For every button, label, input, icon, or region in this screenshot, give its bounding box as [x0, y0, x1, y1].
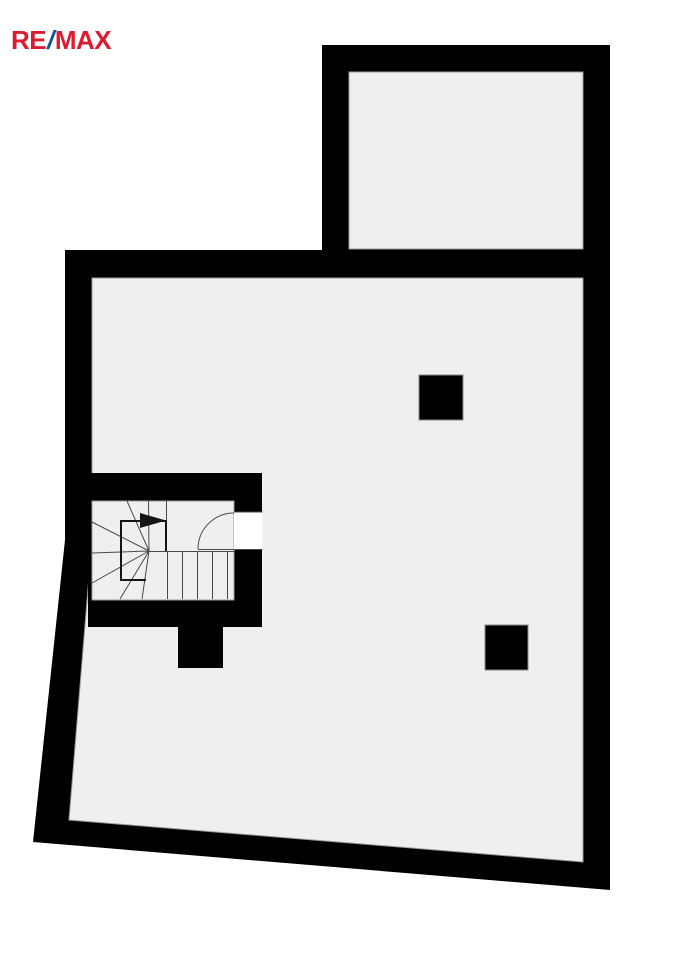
masonry-pillar-upper [419, 375, 463, 420]
wall-stub [178, 627, 223, 668]
floorplan-page: RE/MAX [0, 0, 684, 968]
floor-plan-drawing [0, 0, 684, 968]
masonry-pillar-lower [485, 625, 528, 670]
upper-room-floor [349, 72, 583, 249]
door-opening [234, 512, 263, 550]
